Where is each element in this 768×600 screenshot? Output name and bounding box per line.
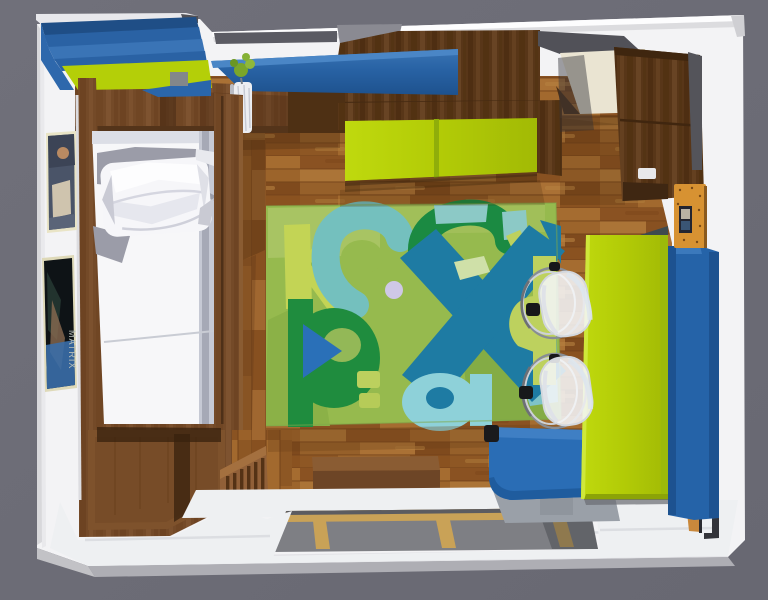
svg-text:MATRIX: MATRIX: [67, 330, 77, 369]
